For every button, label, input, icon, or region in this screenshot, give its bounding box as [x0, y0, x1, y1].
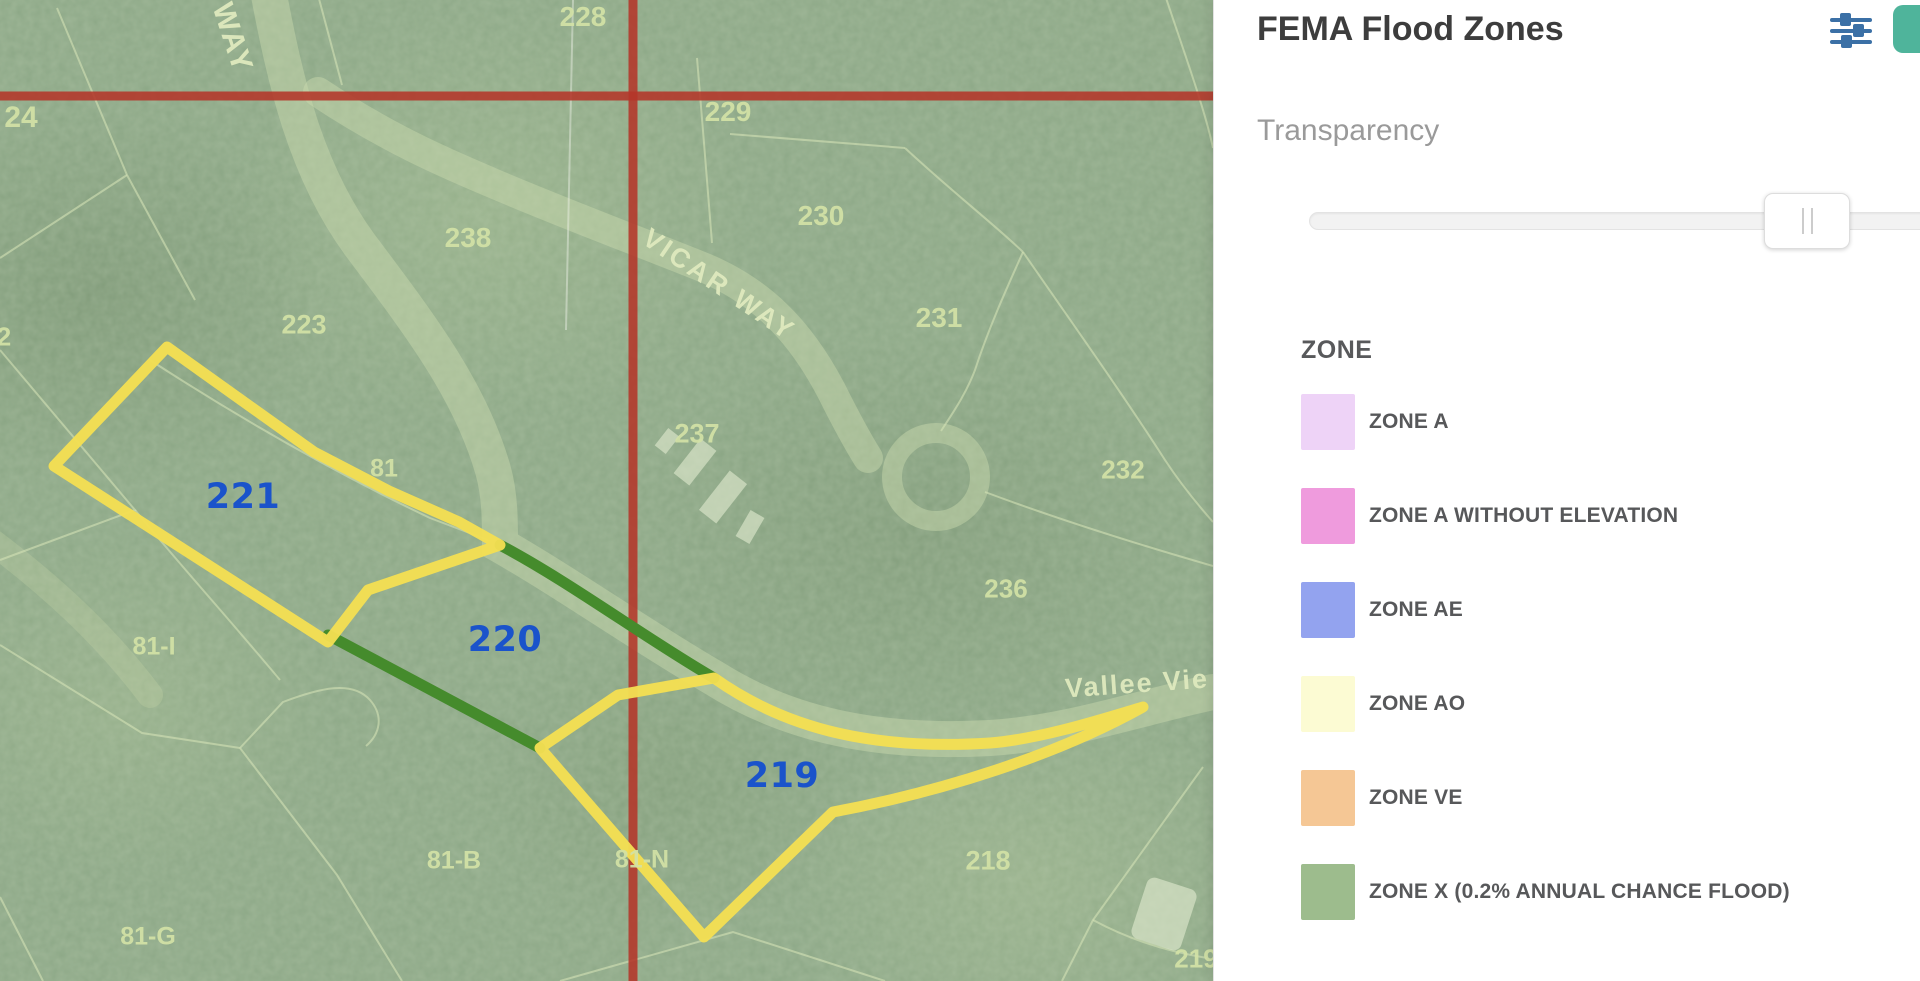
slider-grip-line: [1811, 208, 1813, 234]
panel-title: FEMA Flood Zones: [1257, 10, 1564, 49]
filter-sliders-icon[interactable]: [1828, 13, 1874, 49]
parcel-label: 81-B: [427, 847, 481, 876]
parcel-label: 229: [705, 96, 752, 128]
parcel-label: 219: [1174, 944, 1213, 975]
legend-item-zone-a: ZONE A: [1301, 394, 1901, 450]
parcel-label: 218: [965, 846, 1010, 877]
parcel-label: 230: [798, 200, 845, 232]
parcel-label: 24: [4, 101, 37, 135]
legend-item-zone-x: ZONE X (0.2% ANNUAL CHANCE FLOOD): [1301, 864, 1901, 920]
legend-swatch: [1301, 582, 1355, 638]
parcel-label: 223: [281, 310, 326, 341]
legend-header: ZONE: [1301, 336, 1372, 365]
legend-swatch: [1301, 770, 1355, 826]
map-canvas[interactable]: 2 24 228 229 230 231 232 236 237 238 223…: [0, 0, 1213, 981]
legend-swatch: [1301, 676, 1355, 732]
legend-swatch: [1301, 394, 1355, 450]
legend-item-zone-a-without-elevation: ZONE A WITHOUT ELEVATION: [1301, 488, 1901, 544]
parcel-220-number: 220: [468, 620, 543, 660]
map-overlay-art: [0, 0, 1213, 981]
parcel-label: 81: [370, 455, 398, 484]
parcel-label: 2: [0, 322, 11, 353]
gis-viewer: 2 24 228 229 230 231 232 236 237 238 223…: [0, 0, 1920, 981]
parcel-label: 228: [560, 1, 607, 33]
legend-item-zone-ao: ZONE AO: [1301, 676, 1901, 732]
parcel-label: 81-G: [120, 923, 176, 952]
parcel-219-number: 219: [745, 756, 820, 796]
legend-swatch: [1301, 864, 1355, 920]
legend-label: ZONE A WITHOUT ELEVATION: [1369, 504, 1678, 528]
legend-label: ZONE AO: [1369, 692, 1465, 716]
legend-item-zone-ve: ZONE VE: [1301, 770, 1901, 826]
parcel-label: 232: [1101, 455, 1144, 486]
aerial-texture: [0, 0, 1213, 981]
parcel-label: 81-I: [132, 633, 175, 662]
legend-label: ZONE VE: [1369, 786, 1463, 810]
flood-zones-panel: FEMA Flood Zones Transparency ZONE ZONE …: [1213, 0, 1920, 981]
parcel-label: 236: [984, 574, 1027, 605]
parcel-label: 237: [674, 419, 719, 450]
legend-label: ZONE AE: [1369, 598, 1463, 622]
legend-label: ZONE A: [1369, 410, 1449, 434]
parcel-label: 231: [916, 302, 963, 334]
parcel-label: 81-N: [615, 846, 669, 875]
parcel-label: 238: [445, 222, 492, 254]
legend-item-zone-ae: ZONE AE: [1301, 582, 1901, 638]
parcel-221-number: 221: [206, 477, 281, 517]
slider-handle[interactable]: [1764, 193, 1850, 249]
panel-action-button[interactable]: [1893, 5, 1920, 53]
transparency-label: Transparency: [1257, 114, 1439, 148]
legend-label: ZONE X (0.2% ANNUAL CHANCE FLOOD): [1369, 880, 1790, 904]
legend-swatch: [1301, 488, 1355, 544]
slider-grip-line: [1802, 208, 1804, 234]
